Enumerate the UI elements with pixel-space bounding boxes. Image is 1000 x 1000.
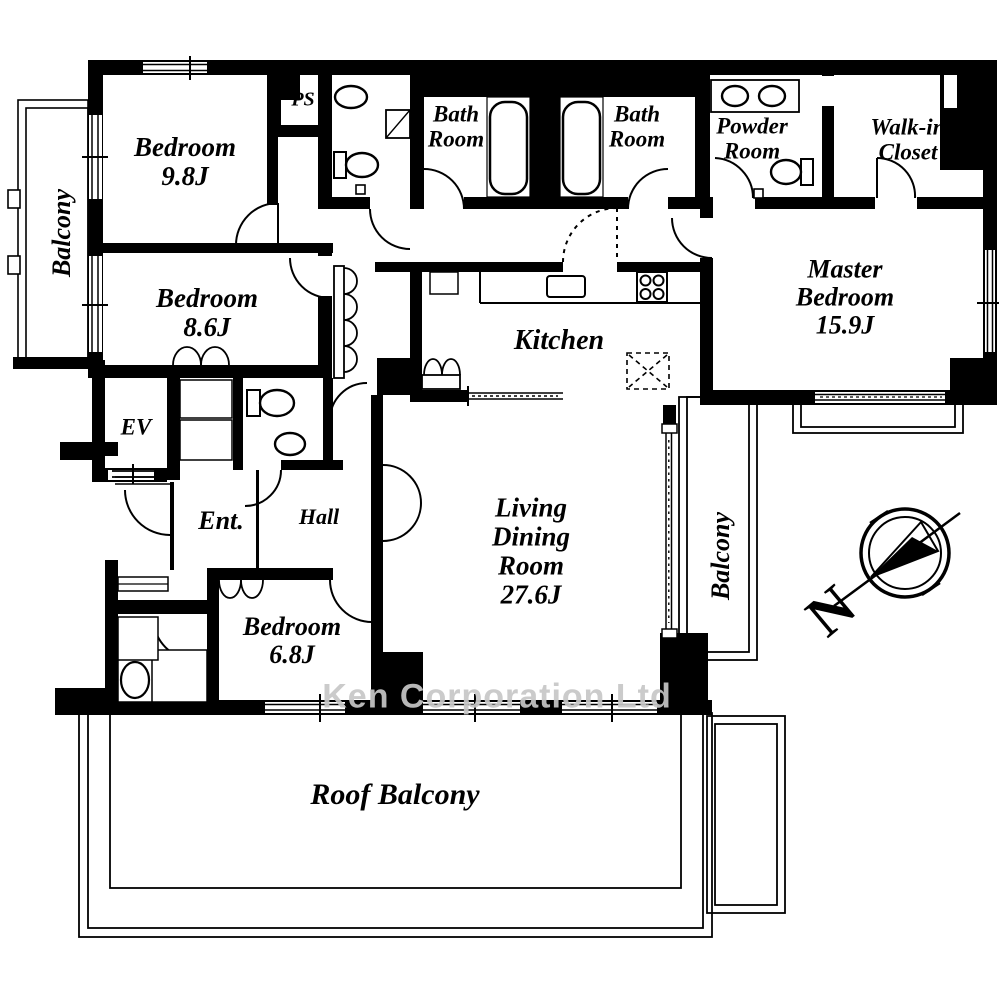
room-size: 6.8J [243,641,341,669]
toilet-room-top-fixtures [334,86,410,194]
room-name: Bath [428,102,484,127]
room-name: Bath [609,102,665,127]
refrigerator-space [627,353,669,389]
room-label-living-dining: Living Dining Room 27.6J [492,493,570,609]
stove-icon [637,272,667,302]
room-name: Powder [716,114,788,139]
room-name: Master [796,255,894,283]
room-label-ev: EV [121,416,152,441]
room-size: 15.9J [796,311,894,339]
room-label-powder-room: Powder Room [716,114,788,163]
room-label-bath-left: Bath Room [428,102,484,151]
room-label-kitchen: Kitchen [514,326,604,356]
room-name: Room [716,139,788,164]
compass [834,509,960,606]
room-label-bath-right: Bath Room [609,102,665,151]
room-name: Room [609,127,665,152]
room-size: 27.6J [492,580,570,609]
room-label-roof-balcony: Roof Balcony [310,779,479,811]
entrance-storage [180,380,232,460]
dashed-door [563,208,617,272]
room-size: 8.6J [156,313,258,342]
room-name: Walk-in [871,115,946,140]
room-size: 9.8J [134,162,236,191]
room-name: Room [428,127,484,152]
room-name: Bedroom [134,133,236,162]
room-label-ps: PS [291,89,314,110]
room-name: Bedroom [156,284,258,313]
floor-plan: Balcony Bedroom 9.8J Bedroom 8.6J PS Bat… [0,0,1000,1000]
room-label-balcony-left: Balcony [48,189,76,277]
compass-needle [871,537,938,577]
room-name: Closet [871,140,946,165]
room-name: Bedroom [796,283,894,311]
watermark: Ken Corporation Ltd [322,678,672,717]
bottom-right-balcony-outline [707,716,785,913]
toilet-room-mid-fixtures [247,390,305,455]
room-name: Room [492,551,570,580]
room-label-bedroom-68: Bedroom 6.8J [243,613,341,669]
room-label-walkin-closet: Walk-in Closet [871,115,946,164]
room-name: Living [492,493,570,522]
washroom-fixtures [118,577,207,702]
roof-balcony-outline [79,713,712,937]
room-label-bedroom-98: Bedroom 9.8J [134,133,236,191]
room-label-entrance: Ent. [198,507,244,535]
room-name: Dining [492,522,570,551]
bathtub-left [487,97,530,197]
room-label-bedroom-86: Bedroom 8.6J [156,284,258,342]
bathtub-right [560,97,603,197]
room-label-hall: Hall [299,505,339,529]
room-name: Bedroom [243,613,341,641]
room-label-master-bedroom: Master Bedroom 15.9J [796,255,894,338]
room-label-balcony-right: Balcony [707,512,735,600]
